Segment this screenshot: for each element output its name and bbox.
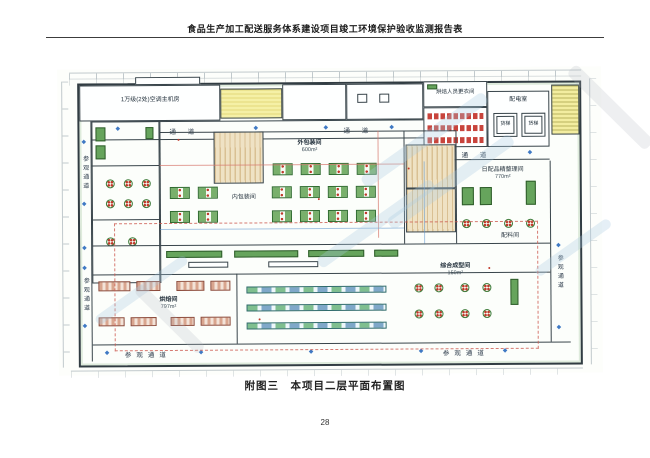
corridor-marker-icon: ◆	[82, 265, 87, 271]
room-outer-packing-label: 外包装间 600m²	[278, 140, 342, 154]
room-inner-packing-label: 内包装间	[216, 194, 272, 201]
room-outer-packing-name: 外包装间	[297, 140, 321, 146]
work-desk	[328, 186, 348, 198]
room-daily-sorting-name: 日配品精整理间	[482, 167, 524, 173]
header-rule	[46, 37, 604, 38]
work-desk	[272, 186, 292, 198]
dimension-band-right	[589, 78, 598, 364]
corridor-marker-icon: ◆	[81, 139, 86, 145]
fixture-box	[379, 94, 389, 103]
work-desk	[300, 186, 320, 198]
dimension-band-bottom	[71, 367, 583, 377]
floor-plan: 1万级(2处)空调主机房 烘焙人员更衣间 配电室 货梯 货梯 通 道 通 道 ◆…	[57, 66, 603, 375]
room-outer-packing-area: 600m²	[278, 147, 342, 154]
equipment-green	[96, 145, 106, 159]
corridor-marker-icon: ◆	[82, 245, 87, 251]
work-desk	[272, 210, 292, 222]
round-table	[142, 179, 151, 188]
work-desk	[198, 211, 218, 223]
sprinkler-dot	[259, 318, 261, 320]
work-desk	[356, 186, 376, 198]
sprinkler-dot	[488, 267, 490, 269]
corridor-label-left-lower: 参观通道	[81, 277, 90, 313]
sprinkler-dot	[408, 168, 410, 170]
header-title: 食品生产加工配送服务体系建设项目竣工环境保护验收监测报告表	[0, 22, 650, 35]
fixture-box	[357, 94, 367, 103]
round-table	[142, 199, 151, 208]
corridor-marker-icon: ◆	[83, 323, 88, 329]
round-table	[124, 179, 133, 188]
equipment-green	[462, 187, 474, 205]
round-table	[106, 199, 115, 208]
bench-fixture	[427, 84, 437, 89]
room-daily-sorting-area: 770m²	[460, 174, 546, 181]
sprinkler-dot	[177, 139, 179, 141]
corridor-marker-icon: ◆	[557, 325, 562, 331]
round-table	[124, 199, 133, 208]
room-top-middle	[282, 84, 346, 120]
freight-lift-label: 货梯	[495, 122, 515, 128]
work-desk	[300, 210, 320, 222]
corridor-marker-icon: ◆	[528, 150, 533, 156]
sprinkler-dot	[318, 198, 320, 200]
stairwell	[551, 84, 579, 134]
round-table	[106, 179, 115, 188]
dimension-band-left	[61, 82, 70, 368]
equipment-green	[526, 181, 536, 205]
room-ahu-yellow	[220, 88, 282, 118]
freight-lift-label: 货梯	[523, 122, 543, 128]
work-desk	[198, 187, 218, 199]
plank-floor-room	[213, 131, 263, 183]
work-desk	[170, 187, 190, 199]
corridor-label-left-upper: 参观通道	[81, 155, 90, 191]
work-desk	[328, 210, 348, 222]
page-number: 28	[0, 418, 650, 427]
equipment-green	[95, 127, 105, 141]
room-hvac-label: 1万级(2处)空调主机房	[95, 97, 205, 105]
figure-caption: 附图三 本项目二层平面布置图	[0, 378, 650, 393]
corridor-marker-icon: ◆	[556, 243, 561, 249]
corridor-marker-icon: ◆	[82, 201, 87, 207]
equipment-green	[145, 127, 153, 139]
work-desk	[170, 211, 190, 223]
equipment-green	[480, 187, 492, 205]
corridor-marker-icon: ◆	[105, 350, 110, 356]
room-power-label: 配电室	[493, 97, 543, 104]
